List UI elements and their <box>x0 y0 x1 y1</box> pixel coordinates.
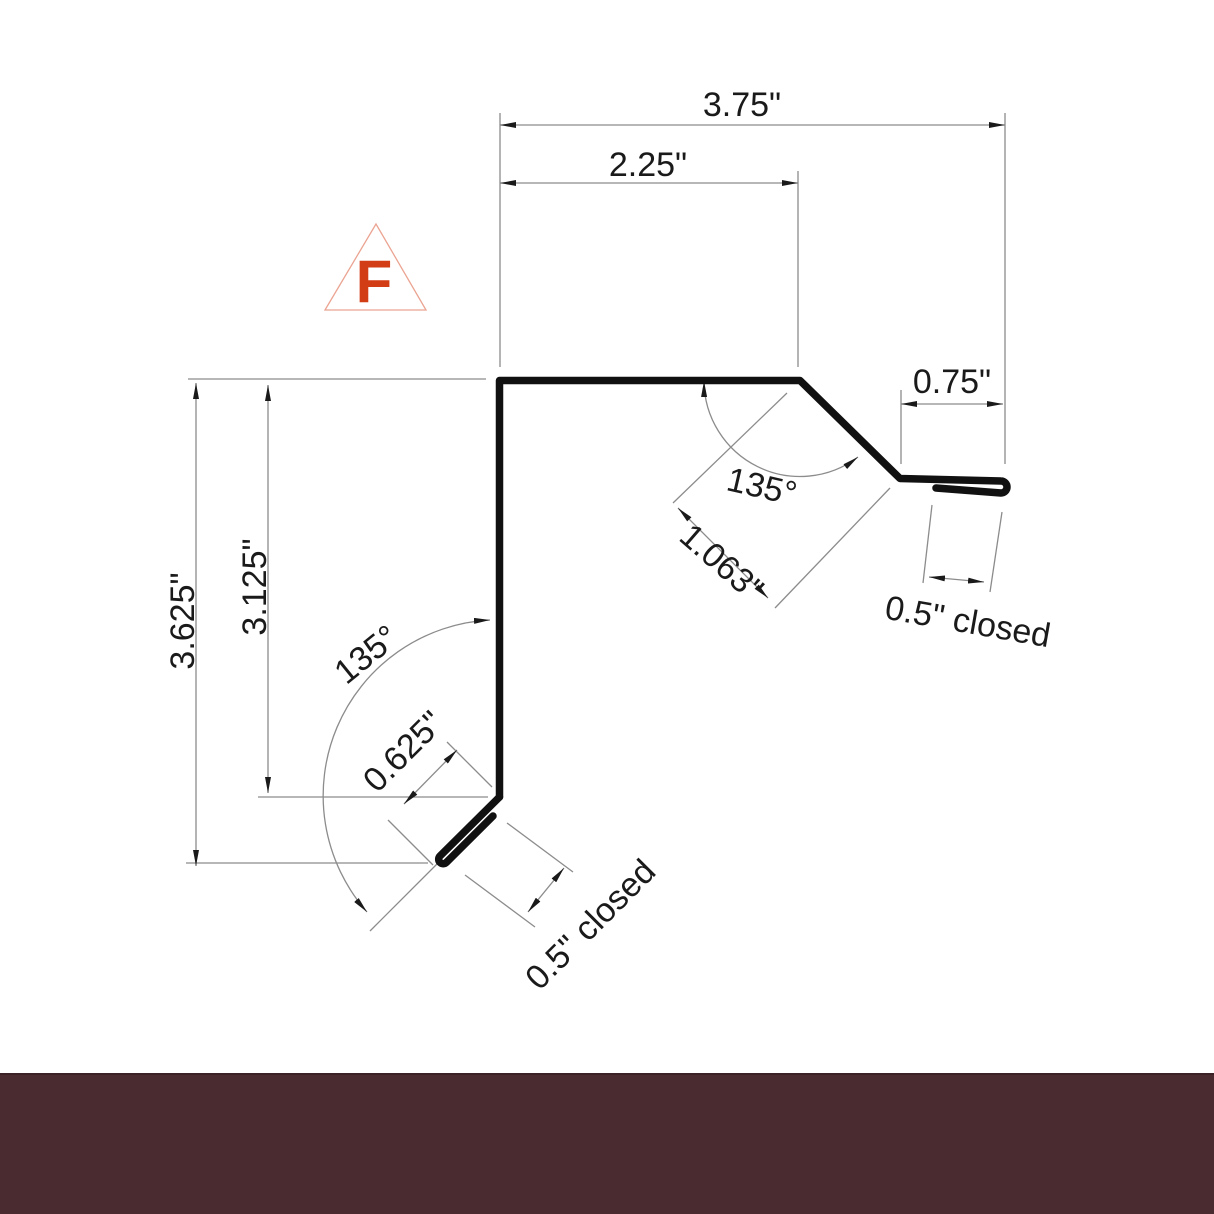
ext-line-bottom-kick-a <box>447 742 492 787</box>
marker-letter: F <box>356 248 393 315</box>
ext-line-bottom-hem-a <box>507 823 573 872</box>
dim-label-overall-height: 3.625" <box>164 572 202 669</box>
extension-lines <box>186 113 1005 931</box>
footer-color-bar <box>0 1073 1214 1214</box>
dim-label-right-diagonal: 1.063" <box>672 517 770 609</box>
ext-line-right-hem-a <box>923 505 932 583</box>
ext-line-bottom-hem-b <box>465 875 535 927</box>
ext-line-right-hem-b <box>990 512 1002 592</box>
dim-line-bottom-hem <box>528 868 564 912</box>
dim-label-right-hem: 0.5" closed <box>882 589 1053 655</box>
dim-label-bottom-hem: 0.5" closed <box>518 852 663 997</box>
dimension-labels: 3.75" 2.25" 0.75" 3.625" 3.125" 135° 1.0… <box>164 86 1053 997</box>
dim-label-face-height: 3.125" <box>236 538 274 635</box>
angle-arc-top <box>704 381 858 477</box>
ext-line-bottom-kick-b <box>388 820 433 865</box>
profile-marker: F <box>325 224 426 315</box>
profile-bottom-hem-path <box>439 797 500 864</box>
dim-label-overall-width: 3.75" <box>703 86 781 124</box>
footer-bar-fill <box>0 1075 1214 1214</box>
dimension-lines <box>196 125 1005 912</box>
dim-label-right-kick: 0.75" <box>913 363 991 401</box>
dim-label-top-flange: 2.25" <box>609 146 687 184</box>
dim-label-bottom-kick: 0.625" <box>356 704 452 800</box>
dim-line-right-hem <box>929 577 984 582</box>
ext-line-bottom-angle-ray <box>370 861 440 931</box>
flashing-profile-drawing: F 3.75" <box>0 0 1214 1214</box>
dim-label-top-angle: 135° <box>723 461 800 514</box>
